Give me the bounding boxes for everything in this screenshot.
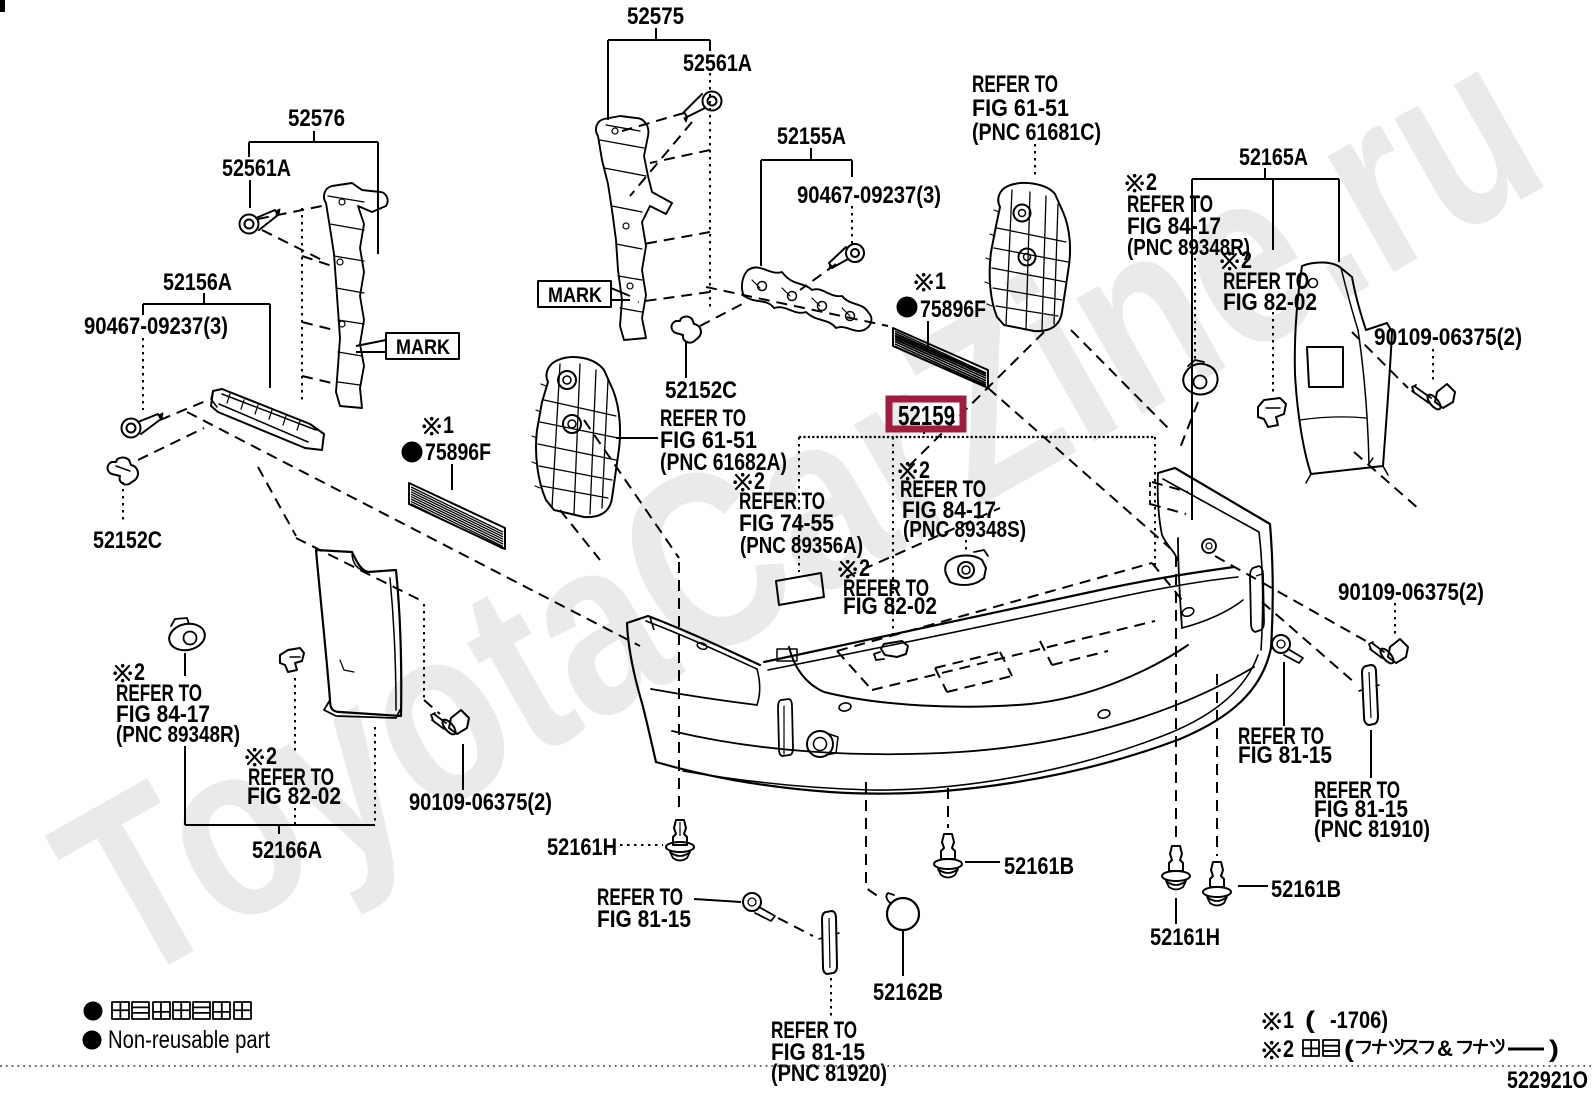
svg-text:1: 1	[935, 268, 946, 295]
svg-text:52156A: 52156A	[163, 269, 232, 296]
svg-text:75896F: 75896F	[920, 296, 986, 323]
svg-text:1: 1	[443, 412, 454, 439]
svg-text:90109-06375(2): 90109-06375(2)	[409, 789, 552, 816]
svg-text:52161H: 52161H	[1150, 924, 1220, 951]
svg-text:52575: 52575	[627, 3, 684, 30]
svg-text:(PNC 89356A): (PNC 89356A)	[740, 532, 863, 558]
svg-text:&: &	[1437, 1036, 1453, 1061]
svg-text:(PNC 89348S): (PNC 89348S)	[903, 516, 1026, 542]
svg-text:522921O: 522921O	[1507, 1067, 1588, 1094]
svg-text:90109-06375(2): 90109-06375(2)	[1374, 324, 1522, 351]
svg-text:52166A: 52166A	[252, 837, 322, 864]
svg-text:FIG 61-51: FIG 61-51	[972, 95, 1069, 122]
svg-text:(: (	[1305, 1007, 1315, 1034]
svg-text:90467-09237(3): 90467-09237(3)	[797, 182, 941, 209]
svg-text:52161B: 52161B	[1004, 853, 1074, 880]
svg-text:FIG 82-02: FIG 82-02	[1223, 289, 1317, 316]
svg-text:(PNC 61681C): (PNC 61681C)	[972, 119, 1101, 146]
svg-text:(PNC 81920): (PNC 81920)	[771, 1060, 887, 1087]
svg-text:FIG 81-15: FIG 81-15	[597, 906, 691, 933]
svg-text:FIG 82-02: FIG 82-02	[247, 783, 341, 810]
svg-text:FIG 81-15: FIG 81-15	[1238, 742, 1332, 769]
svg-text:52576: 52576	[288, 105, 345, 132]
svg-text:(PNC 89348R): (PNC 89348R)	[116, 721, 240, 747]
svg-text:52155A: 52155A	[777, 123, 846, 150]
svg-text:52152C: 52152C	[93, 527, 162, 554]
svg-text:(PNC 81910): (PNC 81910)	[1314, 816, 1430, 843]
svg-text:(: (	[1344, 1036, 1354, 1063]
svg-text:90467-09237(3): 90467-09237(3)	[84, 313, 228, 340]
svg-text:52159: 52159	[898, 400, 955, 431]
svg-text:2: 2	[1283, 1036, 1294, 1063]
svg-text:52161H: 52161H	[547, 834, 617, 861]
svg-text:52162B: 52162B	[873, 979, 943, 1006]
svg-text:52561A: 52561A	[683, 50, 752, 77]
svg-text:75896F: 75896F	[425, 439, 491, 466]
svg-text:-1706): -1706)	[1330, 1007, 1388, 1034]
svg-text:52152C: 52152C	[665, 377, 737, 404]
svg-text:(PNC 89348R): (PNC 89348R)	[1127, 234, 1250, 260]
svg-text:1: 1	[1283, 1007, 1294, 1034]
svg-text:MARK: MARK	[396, 336, 450, 359]
svg-text:52561A: 52561A	[222, 155, 291, 182]
svg-text:52165A: 52165A	[1239, 144, 1308, 171]
svg-text:52161B: 52161B	[1271, 876, 1341, 903]
svg-text:Non-reusable part: Non-reusable part	[108, 1026, 270, 1054]
svg-text:90109-06375(2): 90109-06375(2)	[1338, 579, 1484, 606]
svg-text:): )	[1549, 1036, 1559, 1063]
svg-text:(PNC 61682A): (PNC 61682A)	[660, 449, 787, 476]
svg-text:FIG 82-02: FIG 82-02	[843, 593, 937, 620]
svg-text:MARK: MARK	[548, 284, 602, 307]
svg-text:REFER TO: REFER TO	[972, 71, 1058, 98]
